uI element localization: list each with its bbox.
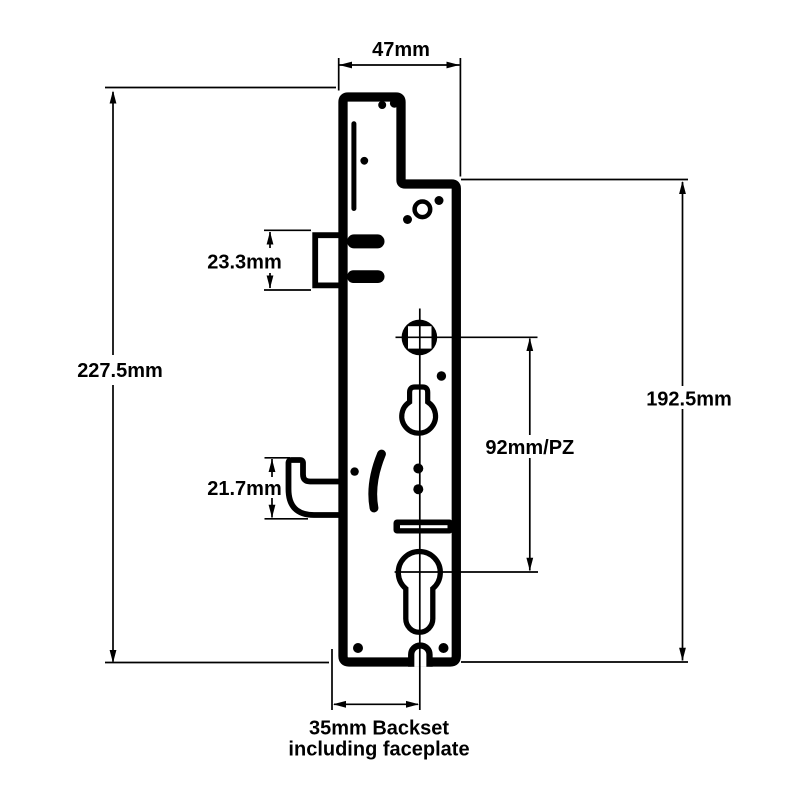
svg-text:including faceplate: including faceplate [288, 739, 469, 761]
svg-text:227.5mm: 227.5mm [77, 360, 163, 382]
svg-text:21.7mm: 21.7mm [207, 478, 282, 500]
svg-text:23.3mm: 23.3mm [207, 252, 282, 274]
svg-text:92mm/PZ: 92mm/PZ [485, 437, 574, 459]
svg-text:192.5mm: 192.5mm [646, 389, 732, 411]
svg-text:35mm Backset: 35mm Backset [309, 718, 449, 740]
svg-text:47mm: 47mm [372, 39, 430, 61]
